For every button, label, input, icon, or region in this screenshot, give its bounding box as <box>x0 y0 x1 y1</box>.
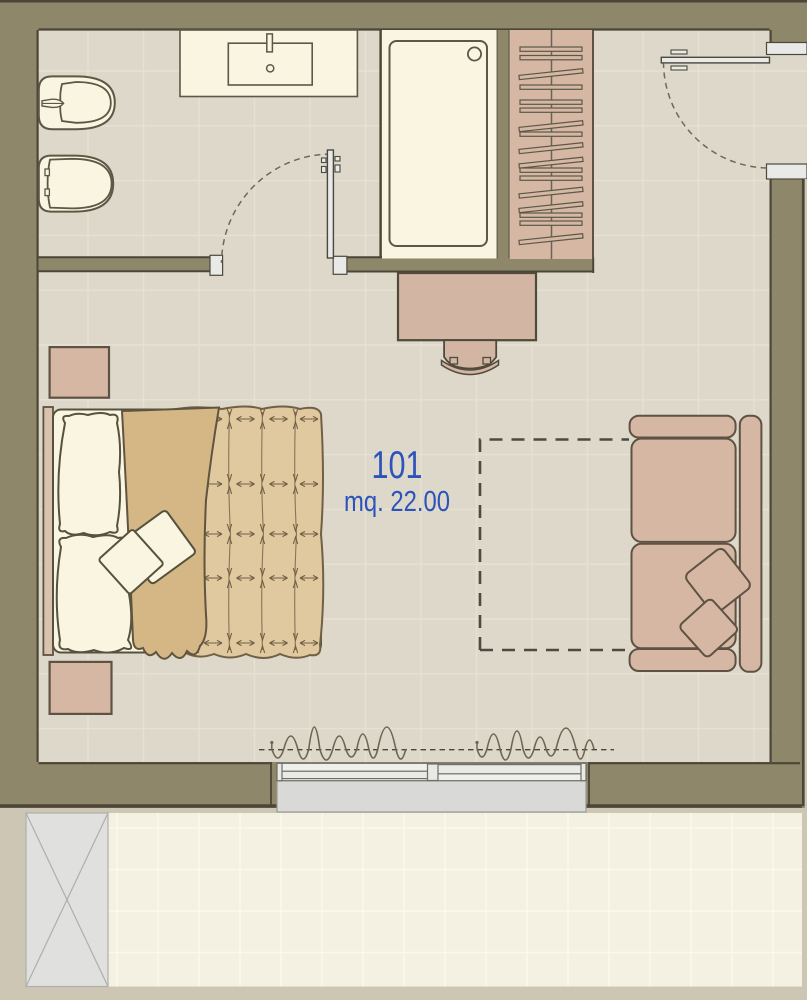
svg-text:mq. 22.00: mq. 22.00 <box>344 486 450 518</box>
svg-text:101: 101 <box>372 444 423 487</box>
